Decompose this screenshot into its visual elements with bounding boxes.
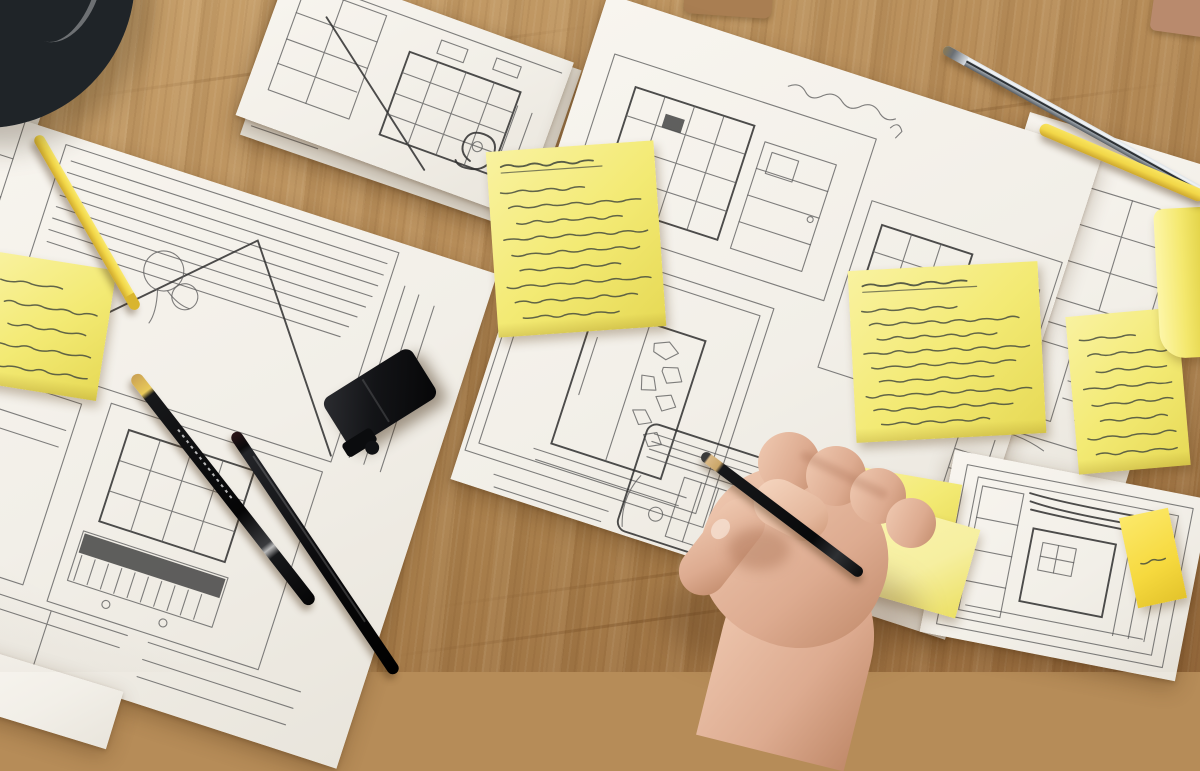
pinky-knuckle <box>886 498 936 548</box>
thumb-web-shadow <box>728 528 790 570</box>
sticky-note-annotations-large <box>848 261 1047 443</box>
sticky-note-task-list <box>486 140 667 337</box>
handwriting-scribbles <box>486 140 667 337</box>
sticky-note-left-edge <box>0 251 117 401</box>
sticky-note-curled-right-edge <box>1153 207 1200 359</box>
handwriting-scribbles <box>848 261 1047 443</box>
glass-highlight <box>8 0 116 53</box>
clip-seam <box>362 379 390 422</box>
